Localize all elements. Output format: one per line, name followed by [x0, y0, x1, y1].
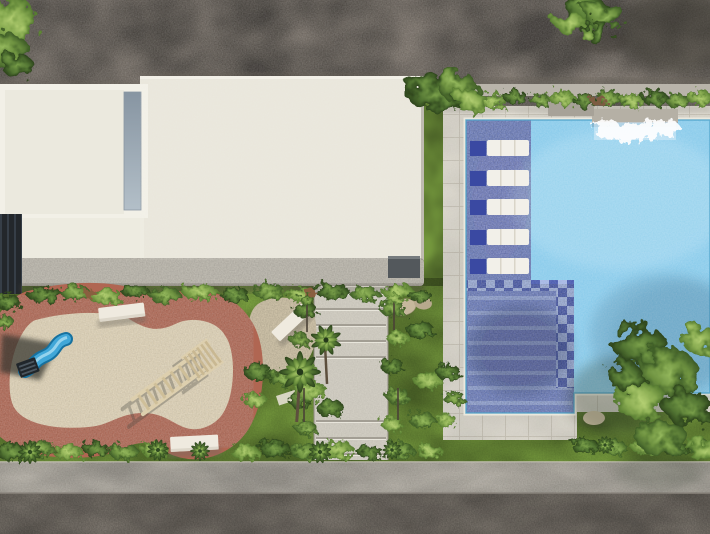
shrub — [243, 392, 267, 408]
shrub — [409, 412, 435, 428]
shadow-on-mosaic — [468, 305, 572, 395]
lounger-shadow — [470, 200, 486, 215]
shrub — [417, 444, 443, 460]
tree-canopy — [634, 418, 686, 454]
lounger — [487, 170, 529, 186]
lounger-shadow — [470, 171, 486, 186]
tree-tuft — [387, 293, 401, 303]
shrub — [149, 287, 181, 303]
shrub-accent — [590, 95, 606, 105]
shrub — [443, 391, 465, 405]
shrub — [2, 54, 34, 78]
texture-overlay — [140, 76, 424, 260]
shrub — [220, 288, 250, 302]
shrub — [642, 90, 668, 106]
shrub — [109, 444, 139, 460]
shrub — [295, 421, 317, 435]
shrub — [182, 284, 218, 300]
shrub — [350, 287, 380, 301]
texture-overlay — [314, 286, 388, 460]
shrub — [503, 90, 527, 104]
texture-overlay — [0, 462, 710, 494]
lounger — [487, 258, 529, 274]
shrub — [259, 440, 291, 458]
tree-canopy — [556, 13, 588, 35]
shrub — [406, 321, 434, 339]
facade-louvers — [0, 214, 22, 294]
shrub — [408, 290, 432, 302]
shrub — [381, 417, 403, 431]
shrub — [380, 358, 404, 374]
lounger — [487, 199, 529, 215]
shrub — [121, 284, 149, 298]
shrub — [231, 444, 259, 460]
curb-line — [0, 493, 710, 495]
building-side-shadow — [421, 84, 424, 260]
lounger — [487, 140, 529, 156]
tree-trunk — [303, 388, 305, 422]
shrub — [387, 331, 409, 345]
tree-canopy — [607, 362, 643, 390]
lounger-shadow — [470, 230, 486, 245]
tree-trunk — [393, 300, 395, 330]
shrub — [549, 90, 575, 106]
sidewalk-edge — [0, 461, 710, 463]
shrub — [316, 399, 344, 417]
shrub — [571, 438, 599, 454]
tree-canopy — [584, 22, 612, 42]
texture-overlay — [0, 494, 710, 534]
lounger-shadow — [470, 259, 486, 274]
waterfall-feature — [592, 109, 680, 143]
lounger — [487, 229, 529, 245]
tree-trunk — [306, 302, 308, 332]
tree-trunk — [397, 388, 399, 420]
roof-lower-band — [22, 214, 144, 262]
shrub — [27, 287, 63, 303]
lounger-shadow — [470, 141, 486, 156]
building-rooftop — [0, 72, 424, 294]
shrub — [315, 283, 349, 299]
shrub — [357, 445, 383, 459]
tree-tuft — [300, 295, 314, 305]
palm-fronds — [279, 351, 321, 393]
roof-dark-box-edge — [388, 256, 420, 259]
shrub-accent — [84, 290, 96, 298]
shrub — [436, 413, 456, 427]
shrub — [53, 444, 83, 460]
shrub — [290, 333, 310, 347]
shrub — [666, 94, 690, 108]
skylight-slot — [124, 92, 141, 210]
shrub — [244, 363, 272, 381]
street — [0, 461, 710, 534]
texture-overlay — [18, 258, 424, 286]
shrub — [436, 364, 460, 380]
roof-left-section — [5, 90, 124, 214]
tree-shadow-on-sidewalk — [615, 456, 705, 488]
shrub — [620, 94, 644, 108]
shrub — [530, 93, 550, 107]
aerial-site-render — [0, 0, 710, 534]
roof-dark-box — [388, 256, 420, 278]
shrub — [454, 89, 486, 111]
shrub — [83, 442, 109, 456]
shrub — [252, 283, 284, 299]
wall-shadow — [436, 78, 710, 85]
